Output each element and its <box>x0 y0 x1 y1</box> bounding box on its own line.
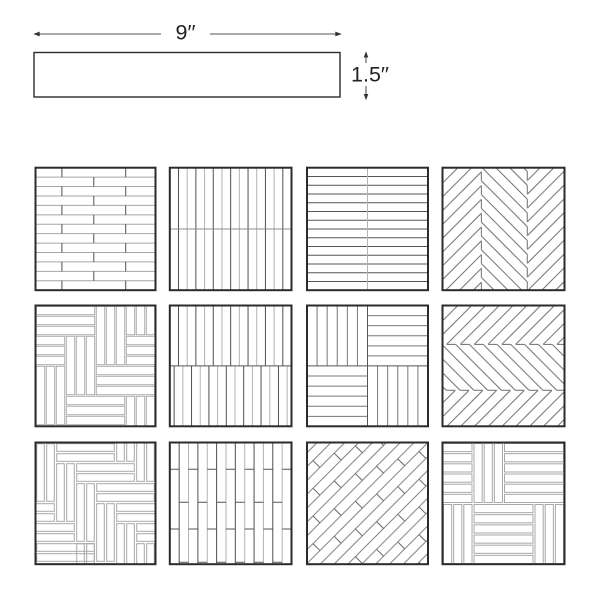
svg-text:1.5′′: 1.5′′ <box>351 63 389 87</box>
svg-text:9′′: 9′′ <box>175 21 195 45</box>
